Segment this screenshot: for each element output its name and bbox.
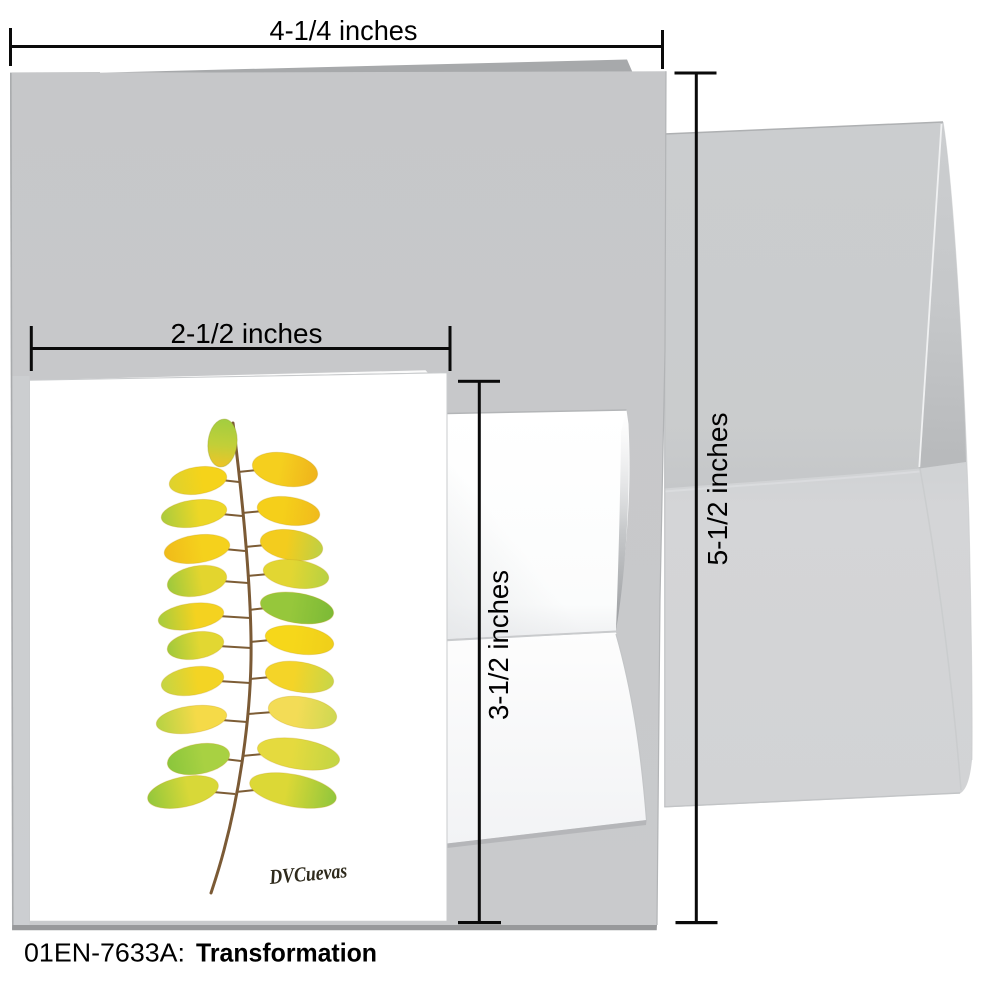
svg-text:Transformation: Transformation [196, 938, 377, 968]
svg-text:3-1/2 inches: 3-1/2 inches [483, 570, 514, 720]
svg-text:2-1/2 inches: 2-1/2 inches [171, 318, 323, 349]
svg-text:01EN-7633A:: 01EN-7633A: [24, 938, 185, 968]
svg-text:4-1/4 inches: 4-1/4 inches [270, 15, 418, 46]
svg-text:5-1/2 inches: 5-1/2 inches [702, 413, 733, 566]
